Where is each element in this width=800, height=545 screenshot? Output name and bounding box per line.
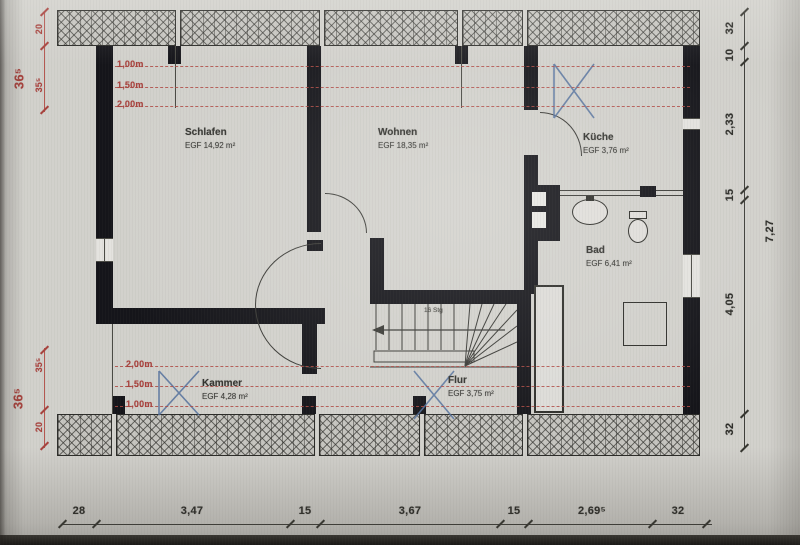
dim-line-left-bottom (44, 348, 45, 448)
roof-hatch-bottom (57, 414, 112, 456)
dim-label-red: 20 (34, 14, 44, 44)
height-label: 1,00m (126, 399, 153, 409)
roof-hatch-top (57, 10, 176, 46)
wall-left (96, 46, 113, 238)
room-area: EGF 6,41 m² (586, 257, 632, 270)
dim-label: 3,47 (167, 505, 217, 517)
kneewall-line (461, 46, 462, 108)
door-arc (325, 193, 367, 233)
room-label-bad: Bad EGF 6,41 m² (586, 244, 632, 270)
stair-label: 16 Stg (424, 307, 443, 314)
roof-window-icon (552, 62, 596, 120)
roof-hatch-top (324, 10, 458, 46)
room-name: Küche (583, 131, 629, 144)
dim-label-red-big: 36⁵ (11, 382, 26, 416)
photo-edge-bottom (0, 535, 800, 545)
room-label-kammer: Kammer EGF 4,28 m² (202, 377, 248, 403)
wall-kueche-bad-divider (560, 190, 683, 196)
toilet-bowl (628, 219, 648, 243)
toilet-tank (629, 211, 647, 219)
dim-label: 2,69⁵ (567, 505, 617, 517)
height-line (115, 106, 690, 107)
dim-label: 15 (280, 505, 330, 517)
dim-tick (40, 105, 49, 114)
roof-hatch-top (527, 10, 700, 46)
wall-kueche (524, 46, 538, 110)
room-name: Bad (586, 244, 632, 257)
wall-post (302, 396, 316, 414)
roof-hatch-top (180, 10, 320, 46)
height-line (115, 406, 690, 407)
window-glass-line (104, 238, 105, 262)
room-area: EGF 18,35 m² (378, 139, 428, 152)
height-line (115, 87, 690, 88)
dim-label: 32 (653, 505, 703, 517)
height-label: 2,00m (126, 359, 153, 369)
height-line (115, 66, 690, 67)
wall-kueche (524, 155, 538, 185)
room-name: Kammer (202, 377, 248, 390)
door-arc (255, 305, 321, 369)
wall-stairs-top (370, 290, 523, 304)
dim-label: 15 (724, 175, 736, 215)
dim-line-left-top (44, 12, 45, 112)
sink-icon (572, 199, 608, 225)
door-arc (255, 243, 321, 305)
roof-hatch-bottom (424, 414, 523, 456)
dim-line-bottom (62, 524, 712, 525)
height-line (115, 366, 690, 367)
room-area: EGF 4,28 m² (202, 390, 248, 403)
roof-hatch-bottom (116, 414, 315, 456)
height-label: 1,50m (117, 80, 144, 90)
window-glass-line (691, 254, 692, 298)
height-label: 2,00m (117, 99, 144, 109)
kneewall-line (112, 324, 113, 414)
room-name: Wohnen (378, 126, 428, 139)
room-label-wohnen: Wohnen EGF 18,35 m² (378, 126, 428, 152)
wall-right (683, 130, 700, 254)
floorplan-photo: 16 Stg 1,00m 1,50m 2,00m 2,00m 1,50m 1,0… (0, 0, 800, 545)
height-label: 1,50m (126, 379, 153, 389)
wall-post (112, 396, 125, 414)
room-label-schlafen: Schlafen EGF 14,92 m² (185, 126, 235, 152)
wall-schlafen-wohnen (307, 46, 321, 232)
room-area: EGF 14,92 m² (185, 139, 235, 152)
dim-label: 28 (54, 505, 104, 517)
room-area: EGF 3,75 m² (448, 387, 494, 400)
shower-square (623, 302, 667, 346)
wall-right (683, 46, 700, 118)
roof-hatch-bottom (527, 414, 700, 456)
dim-label-red-big: 36⁵ (12, 62, 27, 96)
stair-direction-arrow (372, 325, 384, 335)
roof-hatch-top (462, 10, 523, 46)
dim-label: 3,67 (385, 505, 435, 517)
dim-label: 10 (724, 35, 736, 75)
dim-label: 2,33 (724, 104, 736, 144)
room-label-kueche: Küche EGF 3,76 m² (583, 131, 629, 157)
room-name: Schlafen (185, 126, 235, 139)
dim-label-overall: 7,27 (764, 209, 776, 253)
chimney-flue (532, 192, 546, 206)
wall-wohnen-stub (370, 238, 384, 290)
room-name: Flur (448, 374, 494, 387)
dim-tick (40, 441, 49, 450)
wall-divider-stub (640, 186, 656, 197)
dim-label-red: 20 (34, 412, 44, 442)
sink-tap (586, 196, 594, 201)
shaft-duct (534, 285, 564, 413)
dim-label-red: 35⁵ (34, 350, 44, 380)
roof-window-icon (158, 370, 200, 416)
chimney-flue (532, 212, 546, 228)
stairs (370, 304, 517, 368)
dim-label: 15 (489, 505, 539, 517)
dim-line-right (744, 12, 745, 448)
dim-tick (740, 443, 749, 452)
room-label-flur: Flur EGF 3,75 m² (448, 374, 494, 400)
window-right (683, 118, 700, 130)
dim-label: 32 (724, 409, 736, 449)
dim-label-red: 35⁵ (34, 70, 44, 100)
photo-edge-left (0, 0, 6, 545)
roof-hatch-bottom (319, 414, 420, 456)
room-area: EGF 3,76 m² (583, 144, 629, 157)
dim-label: 4,05 (724, 284, 736, 324)
height-label: 1,00m (117, 59, 144, 69)
kneewall-line (175, 46, 176, 108)
wall-stairs-right (517, 290, 531, 414)
wall-right (683, 298, 700, 414)
